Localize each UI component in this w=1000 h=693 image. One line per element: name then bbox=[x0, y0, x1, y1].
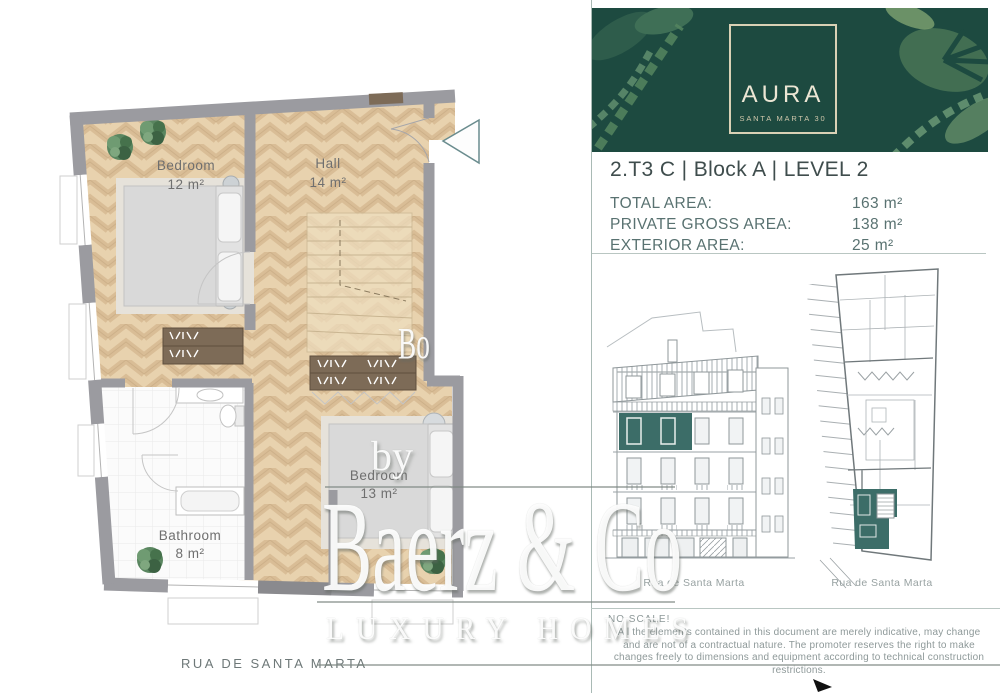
disclaimer-text: All the elements contained in this docum… bbox=[608, 627, 990, 677]
staircase bbox=[307, 213, 412, 352]
plant-icon bbox=[107, 134, 133, 160]
table-row: TOTAL AREA: 163 m² bbox=[610, 193, 903, 214]
disclaimer-block: NO SCALE! All the elements contained in … bbox=[608, 614, 990, 677]
table-row: EXTERIOR AREA: 25 m² bbox=[610, 235, 903, 256]
area-value: 138 m² bbox=[852, 214, 903, 235]
room-area-bathroom: 8 m² bbox=[176, 546, 205, 561]
plant-icon bbox=[140, 119, 166, 145]
brand-logo: AURA SANTA MARTA 30 bbox=[730, 25, 836, 133]
plant-icon bbox=[137, 547, 163, 573]
room-label-hall: Hall bbox=[315, 156, 340, 171]
room-area-hall: 14 m² bbox=[309, 175, 346, 190]
section-divider bbox=[591, 608, 1000, 609]
area-label: EXTERIOR AREA: bbox=[610, 235, 852, 256]
floorplan-drawing: Bedroom 12 m² Hall 14 m² Bedroom 13 m² B… bbox=[0, 0, 590, 693]
elevation-caption: Rua de Santa Marta bbox=[643, 577, 744, 589]
room-label-bedroom2: Bedroom bbox=[350, 468, 408, 483]
wardrobe-bedroom1 bbox=[163, 328, 243, 364]
brand-name: AURA bbox=[730, 81, 836, 109]
door-lintel bbox=[369, 92, 404, 105]
building-elevation bbox=[605, 312, 795, 558]
brand-subtitle: SANTA MARTA 30 bbox=[730, 114, 836, 123]
room-label-bathroom: Bathroom bbox=[159, 528, 222, 543]
location-drawings: Rua de Santa Marta Rua de Santa Marta bbox=[592, 255, 988, 600]
area-table: TOTAL AREA: 163 m² PRIVATE GROSS AREA: 1… bbox=[610, 193, 903, 256]
plant-icon bbox=[420, 548, 446, 574]
mouse-cursor bbox=[810, 675, 838, 693]
unit-title: 2.T3 C | Block A | LEVEL 2 bbox=[610, 158, 869, 182]
brand-header: AURA SANTA MARTA 30 bbox=[592, 8, 988, 152]
site-plan bbox=[806, 269, 938, 588]
room-area-bedroom2: 13 m² bbox=[360, 486, 397, 501]
room-label-bedroom1: Bedroom bbox=[157, 158, 215, 173]
street-name: RUA DE SANTA MARTA bbox=[181, 656, 368, 671]
scale-note: NO SCALE! bbox=[608, 614, 990, 625]
area-label: TOTAL AREA: bbox=[610, 193, 852, 214]
area-value: 163 m² bbox=[852, 193, 903, 214]
area-value: 25 m² bbox=[852, 235, 894, 256]
area-label: PRIVATE GROSS AREA: bbox=[610, 214, 852, 235]
room-area-bedroom1: 12 m² bbox=[167, 177, 204, 192]
bed-bedroom1 bbox=[116, 176, 254, 314]
siteplan-caption: Rua de Santa Marta bbox=[831, 577, 932, 589]
brochure-page: Bedroom 12 m² Hall 14 m² Bedroom 13 m² B… bbox=[0, 0, 1000, 693]
table-row: PRIVATE GROSS AREA: 138 m² bbox=[610, 214, 903, 235]
